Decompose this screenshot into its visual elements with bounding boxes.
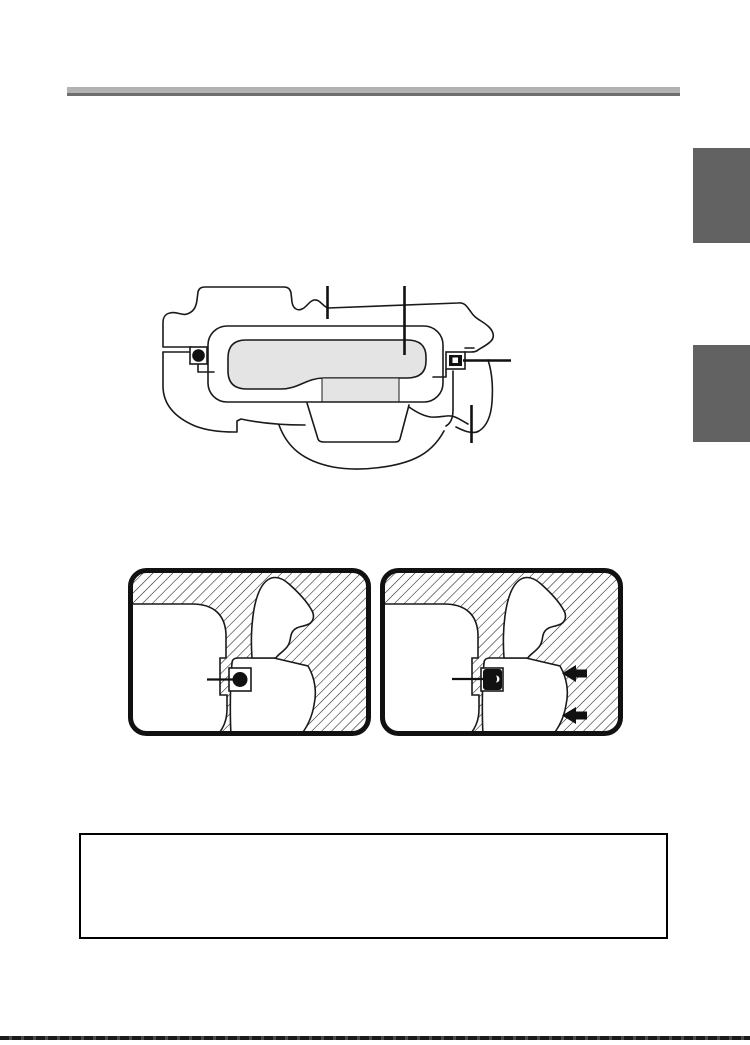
- page-bottom-edge: [0, 1036, 750, 1040]
- seal-detail-panel-open: [128, 568, 371, 736]
- header-rule-dark: [67, 93, 680, 96]
- cross-section-diagram: [150, 270, 550, 495]
- section-tab-lower: [693, 345, 750, 442]
- right-seal: [446, 352, 465, 369]
- outer-bottom-skin: [279, 425, 444, 469]
- section-tab-upper: [693, 148, 750, 243]
- left-seal-step: [198, 364, 214, 372]
- right-ledge-wave: [409, 407, 468, 424]
- left-oring-dot: [192, 349, 205, 362]
- note-box: [79, 833, 668, 939]
- left-seal: [190, 347, 207, 364]
- camera-body-section: [128, 604, 227, 736]
- door-inner-line: [446, 371, 453, 426]
- manual-page: [0, 0, 750, 1045]
- seal-detail-panel-sealed: [380, 568, 623, 736]
- tripod-pocket: [307, 403, 409, 442]
- cavity-block: [322, 378, 399, 402]
- door-outer-line: [456, 360, 492, 432]
- camera-body-section: [380, 604, 479, 736]
- right-seal-step: [433, 369, 446, 377]
